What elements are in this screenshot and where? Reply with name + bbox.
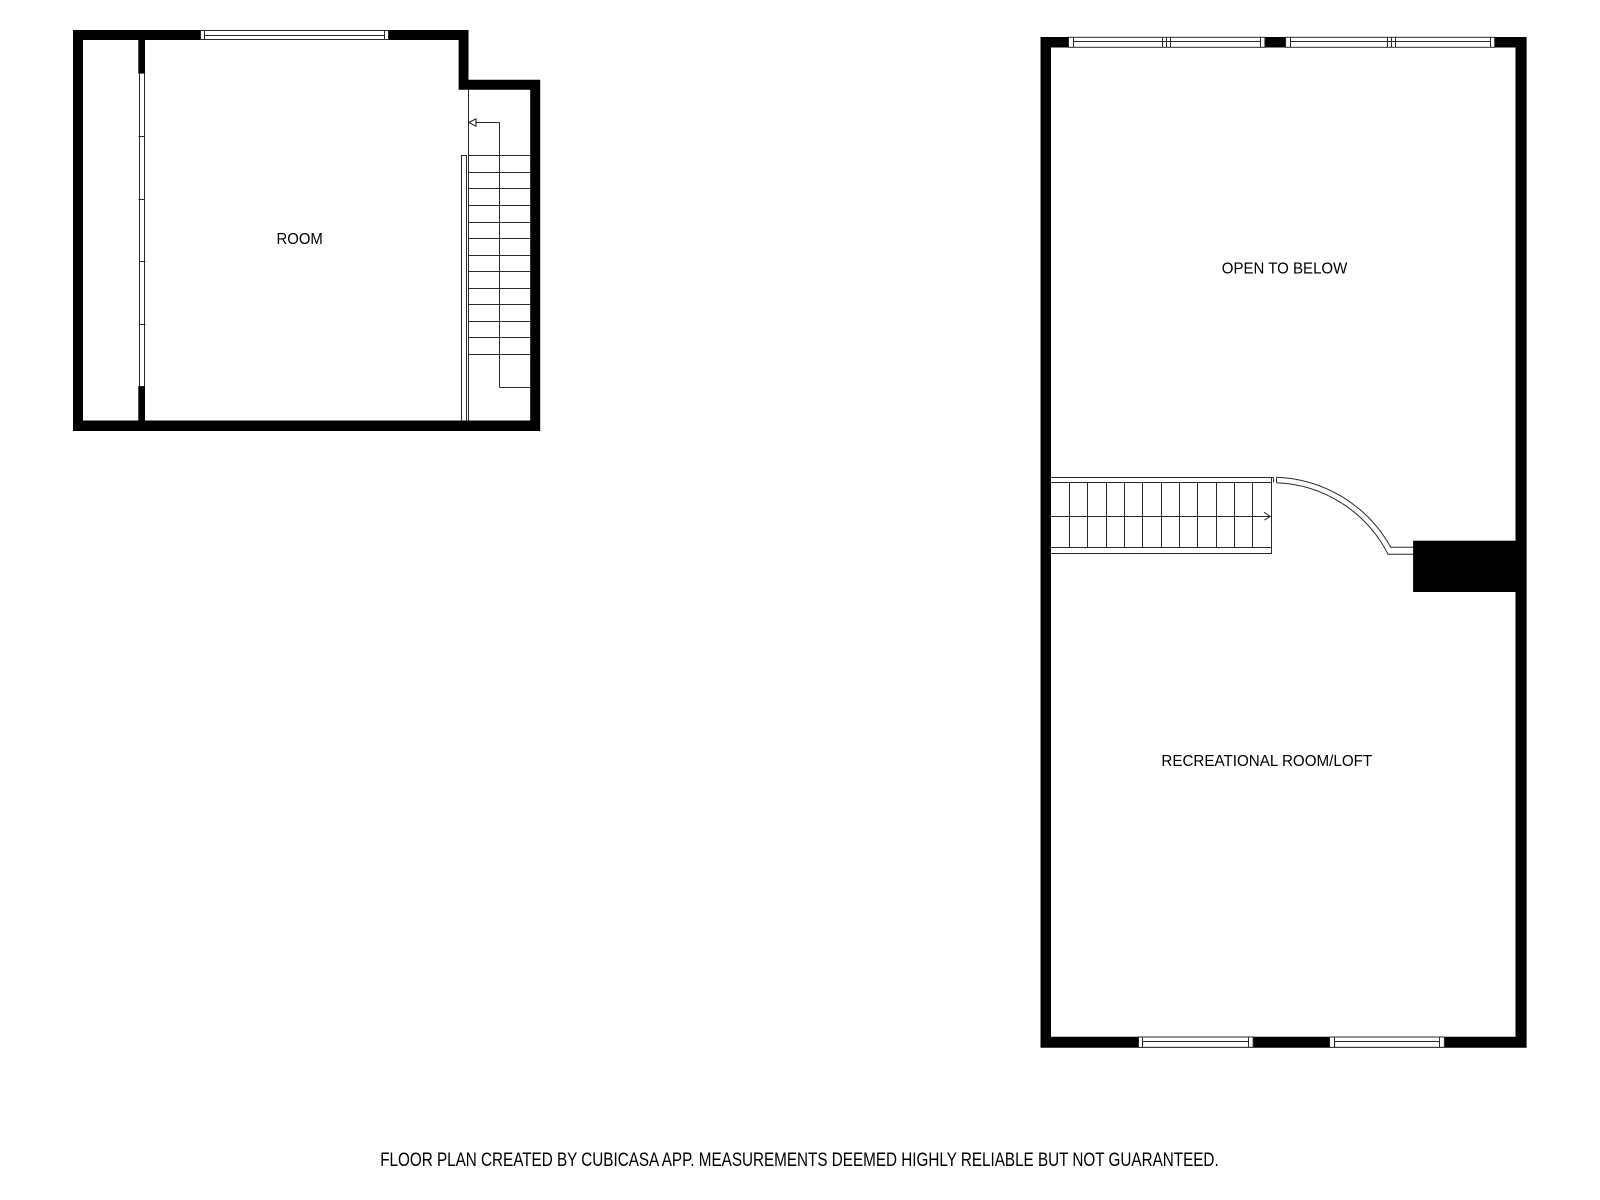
svg-text:OPEN TO BELOW: OPEN TO BELOW [1222,261,1348,278]
svg-text:FLOOR PLAN CREATED BY CUBICASA: FLOOR PLAN CREATED BY CUBICASA APP. MEAS… [380,1150,1218,1171]
svg-text:ROOM: ROOM [277,231,323,248]
svg-text:RECREATIONAL ROOM/LOFT: RECREATIONAL ROOM/LOFT [1161,753,1372,770]
